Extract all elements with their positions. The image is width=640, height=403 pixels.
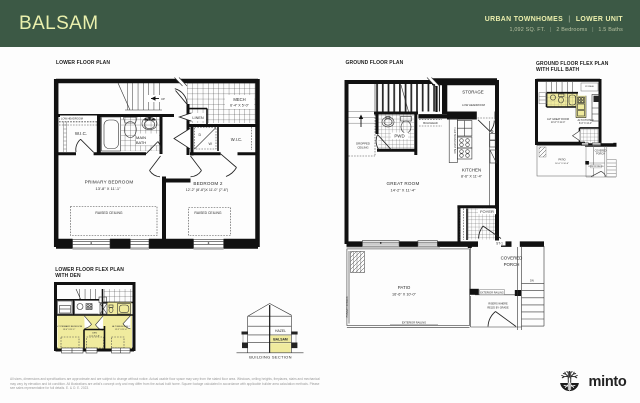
svg-text:ST-1: ST-1 <box>496 242 503 246</box>
svg-text:BALSAM: BALSAM <box>273 337 288 341</box>
svg-text:FLEX BREAKFAST BAR: FLEX BREAKFAST BAR <box>453 127 456 154</box>
svg-text:8'-0" X 11'-4": 8'-0" X 11'-4" <box>579 123 592 125</box>
svg-text:8'-6" X 11'-4": 8'-6" X 11'-4" <box>461 175 483 179</box>
svg-text:FOYER: FOYER <box>480 209 494 214</box>
svg-text:EXTERIOR RAILING: EXTERIOR RAILING <box>402 321 426 325</box>
svg-text:HAZEL: HAZEL <box>275 329 286 333</box>
svg-text:BUILDING SECTION: BUILDING SECTION <box>249 354 292 359</box>
svg-text:PORCH: PORCH <box>596 152 605 155</box>
svg-text:13'-8" X 11'-1": 13'-8" X 11'-1" <box>96 186 122 191</box>
svg-text:CEILING: CEILING <box>357 146 368 150</box>
svg-text:LOW HEADROOM: LOW HEADROOM <box>462 103 485 107</box>
svg-text:COVERED: COVERED <box>501 256 523 261</box>
svg-text:ALT PRIMARY BEDROOM: ALT PRIMARY BEDROOM <box>56 325 82 328</box>
svg-text:minto: minto <box>589 374 627 390</box>
svg-text:DN: DN <box>530 279 534 283</box>
svg-text:RAISED CEILING: RAISED CEILING <box>194 211 221 215</box>
svg-text:ALT GREAT ROOM: ALT GREAT ROOM <box>547 118 569 121</box>
svg-text:6'-4" X 5'-0": 6'-4" X 5'-0" <box>230 104 249 108</box>
svg-text:RISERS WHERE: RISERS WHERE <box>488 303 508 306</box>
svg-text:STORAGE: STORAGE <box>462 90 483 95</box>
svg-text:12'-2" X 11'-0": 12'-2" X 11'-0" <box>115 329 128 331</box>
svg-text:W: W <box>209 142 213 146</box>
svg-text:LINEN: LINEN <box>192 116 203 120</box>
svg-text:DEN: DEN <box>92 333 97 335</box>
svg-text:GREAT ROOM: GREAT ROOM <box>387 181 420 186</box>
svg-text:16'-6" X 10'-0": 16'-6" X 10'-0" <box>392 293 417 297</box>
svg-text:STORAGE: STORAGE <box>585 85 595 88</box>
svg-text:16'-6" X 10'-0": 16'-6" X 10'-0" <box>555 163 569 165</box>
svg-text:KITCHEN: KITCHEN <box>462 168 481 173</box>
svg-text:ALT KITCHEN: ALT KITCHEN <box>577 119 593 122</box>
svg-text:PORCH: PORCH <box>504 262 520 267</box>
svg-text:RAISED CEILING: RAISED CEILING <box>95 211 122 215</box>
svg-text:PATIO: PATIO <box>558 159 565 162</box>
svg-text:W.I.C.: W.I.C. <box>231 137 242 142</box>
svg-text:BEDROOM 2: BEDROOM 2 <box>193 181 223 186</box>
svg-text:PRIMARY BEDROOM: PRIMARY BEDROOM <box>85 179 134 184</box>
svg-text:BULKHEAD: BULKHEAD <box>423 121 438 125</box>
svg-text:EXTERIOR RAILING: EXTERIOR RAILING <box>480 292 504 295</box>
svg-text:REQ'D BY GRADE: REQ'D BY GRADE <box>487 306 509 309</box>
svg-text:12'-2" (8'-8")X 11'-0" (7'-6"): 12'-2" (8'-8")X 11'-0" (7'-6") <box>186 188 229 192</box>
svg-text:PRIVACY SCREEN: PRIVACY SCREEN <box>346 296 349 317</box>
svg-text:LOW HEADROOM: LOW HEADROOM <box>61 117 83 121</box>
svg-text:W.I.C.: W.I.C. <box>75 131 87 136</box>
svg-text:UP: UP <box>161 97 165 101</box>
svg-text:PATIO: PATIO <box>398 285 411 290</box>
svg-text:BATH: BATH <box>136 140 146 145</box>
svg-text:ALT BEDROOM 2: ALT BEDROOM 2 <box>112 325 130 328</box>
svg-text:PWD: PWD <box>394 134 404 139</box>
svg-text:MECH: MECH <box>233 97 245 102</box>
svg-text:14'-2" X 11'-4": 14'-2" X 11'-4" <box>391 188 417 193</box>
svg-text:D: D <box>199 133 202 137</box>
svg-text:13'-4" X 11'-1": 13'-4" X 11'-1" <box>63 329 76 331</box>
svg-text:14'-0" X 11'-4": 14'-0" X 11'-4" <box>551 122 566 124</box>
